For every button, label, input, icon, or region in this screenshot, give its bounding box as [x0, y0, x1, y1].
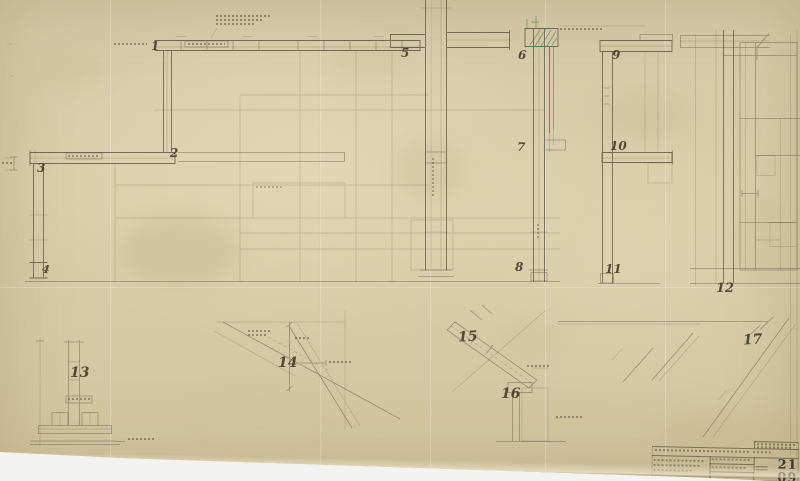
detail-marker-2: 2 — [170, 147, 178, 159]
scanned-drawing-photo: 1 2 3 4 5 6 7 8 9 10 11 12 13 14 15 16 1… — [0, 0, 800, 481]
illegible-annotation — [188, 43, 225, 45]
illegible-annotation — [68, 398, 90, 400]
detail-marker-5: 5 — [401, 47, 409, 59]
illegible-annotation — [256, 186, 284, 188]
detail-marker-4: 4 — [41, 264, 50, 276]
detail-marker-11: 11 — [605, 263, 622, 275]
illegible-annotation — [432, 158, 434, 198]
illegible-annotation — [537, 224, 539, 240]
detail-marker-14: 14 — [278, 356, 297, 370]
detail-marker-10: 10 — [610, 140, 627, 152]
detail-marker-13: 13 — [70, 366, 89, 380]
detail-marker-17: 17 — [743, 332, 763, 347]
title-text — [753, 451, 771, 453]
illegible-annotation — [128, 438, 154, 440]
detail-marker-7: 7 — [517, 141, 526, 153]
illegible-annotation — [248, 330, 272, 332]
detail-marker-16: 16 — [501, 387, 520, 401]
illegible-annotation — [216, 19, 264, 21]
detail-marker-9: 9 — [612, 49, 620, 61]
detail-marker-15: 15 — [458, 329, 478, 344]
detail-marker-8: 8 — [515, 261, 523, 273]
detail-marker-12: 12 — [716, 282, 734, 295]
illegible-annotation — [248, 334, 266, 336]
detail-marker-1: 1 — [151, 40, 160, 52]
illegible-annotation — [114, 43, 147, 45]
illegible-annotation — [295, 337, 309, 339]
title-text — [655, 449, 750, 453]
detail-marker-3: 3 — [37, 162, 45, 174]
illegible-annotation — [527, 365, 549, 367]
illegible-annotation — [2, 162, 12, 164]
detail-marker-6: 6 — [518, 49, 527, 62]
illegible-annotation — [329, 361, 351, 363]
illegible-annotation — [654, 459, 706, 462]
illegible-annotation — [68, 155, 100, 157]
drawing-linework — [0, 0, 800, 481]
illegible-annotation — [712, 458, 750, 461]
illegible-annotation — [216, 23, 256, 25]
illegible-annotation — [216, 15, 271, 17]
illegible-annotation — [556, 416, 584, 418]
drawing-sheet: 1 2 3 4 5 6 7 8 9 10 11 12 13 14 15 16 1… — [0, 0, 800, 481]
illegible-annotation — [560, 28, 602, 30]
